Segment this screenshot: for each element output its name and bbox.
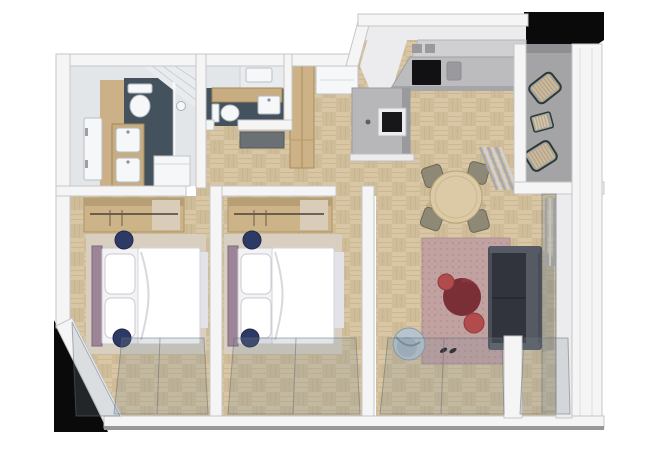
- wall-top-right: [358, 14, 528, 26]
- sofa-arm-top: [490, 246, 540, 253]
- faucet: [126, 160, 129, 163]
- glass-panel-bedroom-left: [114, 338, 208, 414]
- toilet-tank: [212, 104, 219, 122]
- wall-bathroom-second-right: [284, 54, 292, 130]
- doormat: [240, 132, 284, 148]
- kitchen-sink: [447, 62, 461, 80]
- glass-panel-right-window: [542, 194, 556, 412]
- balcony-floor-shade: [526, 44, 572, 53]
- storage-cabinet: [154, 156, 190, 186]
- wall-bedroom-left-top: [56, 186, 186, 196]
- room-bedroom-middle: [224, 198, 344, 354]
- bathroom-main-door: [84, 118, 102, 180]
- toilet-bowl: [221, 105, 239, 121]
- faucet: [267, 98, 270, 101]
- nightstand: [243, 231, 261, 249]
- wall-right: [572, 44, 602, 422]
- cooktop: [412, 60, 441, 85]
- wall-balcony-door-frame: [514, 44, 526, 194]
- sofa-back: [526, 253, 538, 343]
- wall-bathroom-main-right: [196, 54, 206, 188]
- wardrobe-clothes: [300, 200, 328, 230]
- bathroom-second-wall-face: [206, 64, 240, 88]
- partition-knob: [366, 120, 371, 125]
- bed-shadow: [334, 252, 344, 328]
- floor-plan-render: [0, 0, 650, 450]
- toilet-tank: [128, 84, 152, 93]
- faucet: [126, 130, 129, 133]
- wall-bottom-outer-line: [104, 426, 604, 430]
- wardrobe-clothes: [152, 200, 180, 230]
- headboard: [92, 246, 102, 346]
- room-bathroom-second: [206, 64, 284, 126]
- floor-plan-stage: [0, 0, 650, 450]
- nightstand: [115, 231, 133, 249]
- pillow: [105, 254, 135, 294]
- toilet-bowl: [130, 95, 150, 117]
- pillow: [241, 254, 271, 294]
- skylight: [246, 68, 272, 82]
- room-dining: [419, 161, 490, 233]
- tv-screen: [382, 112, 402, 132]
- kitchen-shelf-box: [412, 44, 422, 53]
- bed-duvet: [138, 248, 200, 344]
- door-handle: [85, 128, 88, 136]
- glass-post-living: [504, 336, 522, 418]
- room-bathroom-main: [70, 64, 196, 186]
- wall-bathroom-second-bottom-b: [238, 120, 292, 130]
- wall-bathroom-second-bottom-a: [206, 120, 214, 130]
- partition-base-cap: [350, 154, 414, 161]
- kitchen-shelf-box: [425, 44, 435, 53]
- door-handle: [85, 160, 88, 168]
- headboard: [228, 246, 238, 346]
- dining-table: [430, 171, 482, 223]
- pouf: [464, 313, 484, 333]
- shower-head: [177, 102, 186, 111]
- balcony-floor: [526, 44, 572, 194]
- kitchen-counter-front: [392, 86, 526, 91]
- wall-bedroom-middle-top: [222, 186, 336, 196]
- bed-duvet: [272, 248, 334, 344]
- wall-between-bedrooms: [210, 186, 222, 416]
- pouf: [438, 274, 454, 290]
- wall-bedroom-living: [362, 186, 374, 416]
